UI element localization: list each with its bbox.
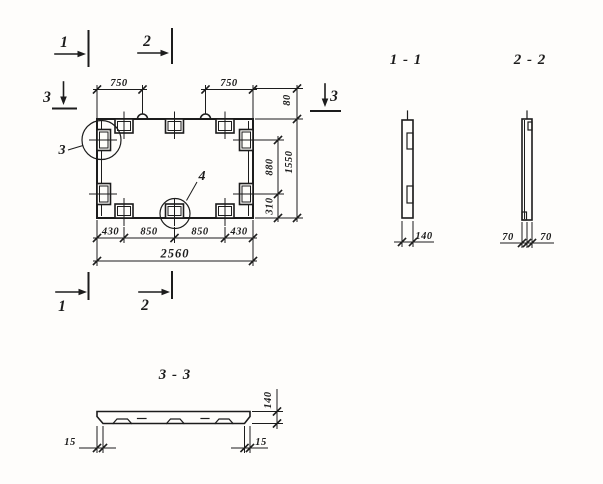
plan-view: 3 4 750 750: [42, 29, 340, 315]
technical-drawing: 3 4 750 750: [0, 0, 603, 484]
dim-bottom-850-right: 850: [191, 227, 209, 238]
dim-right-1550: 1550: [284, 150, 295, 173]
svg-text:1: 1: [60, 34, 68, 51]
section-view-2-2: 2 - 2 70 70: [500, 52, 554, 248]
detail-3-label: 3: [58, 143, 66, 158]
svg-text:3: 3: [42, 89, 51, 106]
dim-bottom-total: 2560: [160, 247, 190, 261]
dims-right: 880 310 80 1550: [255, 85, 303, 222]
dim-section-1-1-140: 140: [415, 231, 433, 242]
section-mark-3-right: 3: [311, 84, 340, 111]
section-mark-1-bottom: 1: [56, 273, 89, 315]
section-3-3-dim-height: 140: [252, 389, 283, 429]
section-3-3-dim-right: 15: [231, 426, 268, 453]
dim-section-2-2-70-left: 70: [502, 232, 514, 243]
dims-bottom: 430 850 850 430 2560: [93, 220, 257, 266]
dim-right-80: 80: [282, 94, 293, 106]
dim-right-310: 310: [265, 197, 276, 216]
section-3-3-body: [97, 412, 250, 424]
section-3-3-dim-left: 15: [64, 426, 116, 453]
section-mark-2-top: 2: [138, 29, 172, 63]
dim-section-3-3-140: 140: [263, 391, 274, 409]
section-3-3-title: 3 - 3: [158, 367, 192, 383]
dim-section-3-3-15-right: 15: [255, 437, 267, 448]
detail-4-label: 4: [198, 169, 206, 184]
section-2-2-dim: 70 70: [500, 222, 554, 248]
dim-top-left: 750: [110, 78, 128, 89]
section-mark-2-bottom: 2: [139, 272, 172, 314]
dim-bottom-430-left: 430: [101, 227, 120, 238]
section-1-1-dim: 140: [394, 221, 434, 247]
section-2-2-body: [522, 119, 532, 220]
dim-right-880: 880: [265, 158, 276, 176]
section-view-3-3: 3 - 3 15 15 140: [64, 367, 283, 453]
svg-text:2: 2: [142, 33, 151, 50]
dim-section-3-3-15-left: 15: [64, 437, 76, 448]
svg-text:2: 2: [140, 297, 149, 314]
dim-top-right: 750: [220, 78, 238, 89]
dim-bottom-430-right: 430: [229, 227, 248, 238]
dim-bottom-850-left: 850: [140, 227, 158, 238]
dim-section-2-2-70-right: 70: [540, 232, 552, 243]
section-2-2-title: 2 - 2: [513, 52, 547, 68]
section-view-1-1: 1 - 1 140: [390, 52, 434, 247]
svg-text:1: 1: [58, 298, 66, 315]
drawing-sheet: 3 4 750 750: [0, 0, 603, 484]
svg-text:3: 3: [329, 88, 338, 105]
section-mark-1-top: 1: [55, 31, 89, 66]
section-1-1-title: 1 - 1: [390, 52, 423, 68]
section-mark-3-left: 3: [42, 82, 76, 109]
